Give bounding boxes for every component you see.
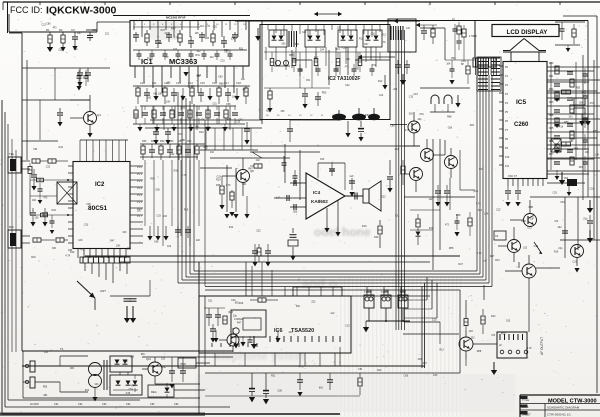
svg-text:102: 102 xyxy=(124,360,129,363)
svg-text:C66: C66 xyxy=(154,240,159,243)
svg-text:472: 472 xyxy=(53,26,58,29)
svg-text:C66: C66 xyxy=(86,203,91,206)
svg-text:C92: C92 xyxy=(78,403,83,406)
svg-text:R12: R12 xyxy=(555,66,560,69)
svg-text:C51: C51 xyxy=(129,388,134,391)
svg-text:47K: 47K xyxy=(381,41,386,44)
svg-text:22p: 22p xyxy=(583,217,588,220)
svg-text:104: 104 xyxy=(320,48,325,51)
svg-text:C93: C93 xyxy=(102,403,107,406)
svg-text:681: 681 xyxy=(196,75,201,78)
svg-text:C22: C22 xyxy=(345,84,350,87)
svg-text:10K: 10K xyxy=(166,101,171,104)
svg-text:R19: R19 xyxy=(501,332,506,335)
svg-text:C15: C15 xyxy=(474,190,479,193)
svg-text:FCC ID:: FCC ID: xyxy=(10,5,43,15)
svg-text:105: 105 xyxy=(506,319,511,322)
svg-text:R47: R47 xyxy=(248,167,253,170)
svg-text:AC120V: AC120V xyxy=(30,403,39,406)
svg-text:C66: C66 xyxy=(564,177,569,180)
svg-text:472: 472 xyxy=(554,220,559,223)
svg-text:C33: C33 xyxy=(433,374,438,377)
svg-text:R31: R31 xyxy=(495,259,500,262)
svg-text:C33: C33 xyxy=(320,158,325,161)
svg-text:103: 103 xyxy=(161,358,166,361)
svg-text:R31: R31 xyxy=(451,57,456,60)
svg-text:102: 102 xyxy=(256,159,261,162)
svg-text:C15: C15 xyxy=(345,325,350,328)
svg-text:472: 472 xyxy=(491,334,496,337)
svg-text:C80: C80 xyxy=(46,23,51,26)
svg-text:R19: R19 xyxy=(184,208,189,211)
svg-text:R12: R12 xyxy=(359,38,364,41)
svg-text:222: 222 xyxy=(393,88,398,91)
svg-text:105: 105 xyxy=(473,35,478,38)
svg-text:R12: R12 xyxy=(377,369,382,372)
svg-text:C3: C3 xyxy=(71,28,75,32)
svg-text:R45: R45 xyxy=(216,184,221,187)
svg-text:P10: P10 xyxy=(505,156,510,159)
svg-text:R47: R47 xyxy=(110,239,115,242)
svg-text:IC2 TA31002F: IC2 TA31002F xyxy=(328,76,360,82)
svg-text:P1.7: P1.7 xyxy=(137,215,143,218)
svg-text:681: 681 xyxy=(569,140,574,143)
svg-text:R27: R27 xyxy=(549,153,554,156)
svg-text:C51: C51 xyxy=(306,79,311,82)
svg-text:R47: R47 xyxy=(458,263,463,266)
svg-text:104: 104 xyxy=(288,331,293,334)
svg-text:R88: R88 xyxy=(227,118,232,121)
svg-text:R23: R23 xyxy=(549,101,554,104)
svg-text:47K: 47K xyxy=(200,119,205,122)
svg-text:472: 472 xyxy=(445,224,450,227)
svg-text:R55: R55 xyxy=(593,130,598,133)
svg-text:ANT: ANT xyxy=(100,289,106,293)
svg-text:CTW-3000-01 1/1: CTW-3000-01 1/1 xyxy=(547,413,571,417)
svg-text:22p: 22p xyxy=(164,32,169,35)
svg-text:R12: R12 xyxy=(229,226,234,229)
svg-text:104: 104 xyxy=(200,25,205,28)
svg-text:105: 105 xyxy=(130,356,135,359)
svg-text:222: 222 xyxy=(170,153,175,156)
svg-text:C51: C51 xyxy=(213,26,218,29)
svg-text:MODEL CTW-3000: MODEL CTW-3000 xyxy=(548,399,597,405)
svg-text:C15: C15 xyxy=(126,392,131,395)
svg-text:C16: C16 xyxy=(212,81,217,85)
svg-text:R12: R12 xyxy=(439,348,444,351)
svg-text:R33: R33 xyxy=(169,140,174,143)
svg-text:330: 330 xyxy=(281,43,286,46)
svg-text:R88: R88 xyxy=(529,206,534,209)
svg-text:C80: C80 xyxy=(390,125,395,128)
svg-text:102: 102 xyxy=(523,247,528,250)
svg-text:105: 105 xyxy=(35,216,40,219)
svg-text:P1.1: P1.1 xyxy=(137,173,143,176)
svg-text:472: 472 xyxy=(582,91,587,94)
svg-text:R32: R32 xyxy=(160,140,165,143)
svg-text:R12: R12 xyxy=(491,315,496,318)
svg-text:C80: C80 xyxy=(579,102,584,105)
svg-text:105: 105 xyxy=(302,31,307,34)
svg-text:C80: C80 xyxy=(278,390,283,393)
svg-text:C80: C80 xyxy=(218,75,223,78)
svg-text:R2: R2 xyxy=(59,28,63,32)
svg-text:104: 104 xyxy=(209,56,214,59)
svg-text:C15: C15 xyxy=(527,227,532,230)
svg-text:330: 330 xyxy=(147,96,152,99)
svg-text:330: 330 xyxy=(231,38,236,41)
svg-text:4.7K: 4.7K xyxy=(405,129,410,132)
svg-text:330: 330 xyxy=(296,305,301,308)
svg-text:R55: R55 xyxy=(322,92,327,95)
svg-text:105: 105 xyxy=(68,249,73,252)
svg-text:C33: C33 xyxy=(178,133,183,136)
svg-text:C51: C51 xyxy=(212,103,217,106)
svg-text:47K: 47K xyxy=(345,65,350,68)
svg-text:C51: C51 xyxy=(560,201,565,204)
svg-text:R20: R20 xyxy=(549,62,554,65)
svg-text:1uF: 1uF xyxy=(530,217,535,220)
svg-text:C51: C51 xyxy=(190,85,195,88)
svg-text:R31: R31 xyxy=(174,169,179,172)
svg-text:103: 103 xyxy=(568,116,573,119)
svg-text:R31: R31 xyxy=(239,47,244,50)
svg-text:R19: R19 xyxy=(559,125,564,128)
svg-text:472: 472 xyxy=(43,196,48,199)
svg-text:102: 102 xyxy=(196,50,201,53)
svg-text:22p: 22p xyxy=(58,49,63,52)
svg-text:330: 330 xyxy=(418,358,423,361)
svg-text:681: 681 xyxy=(141,353,146,356)
svg-text:R1: R1 xyxy=(46,28,50,32)
svg-text:104: 104 xyxy=(232,95,237,98)
svg-text:R19: R19 xyxy=(362,225,367,228)
svg-text:C51: C51 xyxy=(358,368,363,371)
svg-text:681: 681 xyxy=(195,126,200,129)
svg-text:C51: C51 xyxy=(419,113,424,116)
svg-text:R19: R19 xyxy=(216,178,221,181)
svg-text:C18: C18 xyxy=(236,81,241,85)
svg-text:330: 330 xyxy=(295,43,300,46)
svg-text:R12: R12 xyxy=(85,389,90,392)
svg-text:P1.4: P1.4 xyxy=(137,194,143,197)
svg-text:C22: C22 xyxy=(342,47,347,50)
svg-text:C15: C15 xyxy=(236,120,241,123)
svg-text:C80: C80 xyxy=(180,139,185,142)
svg-text:R55: R55 xyxy=(43,386,48,389)
svg-text:R88: R88 xyxy=(456,214,461,217)
svg-text:R24: R24 xyxy=(549,114,554,117)
svg-text:10K: 10K xyxy=(242,183,247,186)
svg-text:22p: 22p xyxy=(233,314,238,317)
svg-text:R19: R19 xyxy=(266,110,271,113)
svg-text:C66: C66 xyxy=(404,374,409,377)
svg-text:DWG: DWG xyxy=(522,405,528,409)
svg-text:1uF: 1uF xyxy=(276,197,281,200)
svg-text:681: 681 xyxy=(43,394,48,397)
svg-text:X2: X2 xyxy=(495,234,499,238)
svg-text:472: 472 xyxy=(204,146,209,149)
svg-text:C51: C51 xyxy=(127,247,132,250)
svg-text:LCD DISPLAY: LCD DISPLAY xyxy=(507,29,549,36)
svg-text:4.7K: 4.7K xyxy=(174,36,179,39)
svg-text:222: 222 xyxy=(382,195,387,198)
svg-text:C11: C11 xyxy=(152,81,157,85)
svg-text:102: 102 xyxy=(210,151,215,154)
svg-text:4.7K: 4.7K xyxy=(182,174,187,177)
svg-text:R30: R30 xyxy=(142,140,147,143)
svg-text:IC4: IC4 xyxy=(313,190,321,195)
svg-text:R25: R25 xyxy=(549,127,554,130)
svg-text:222: 222 xyxy=(105,33,110,36)
svg-text:1uF: 1uF xyxy=(349,175,354,178)
svg-text:IC2: IC2 xyxy=(95,182,105,188)
svg-text:4.7K: 4.7K xyxy=(527,347,532,350)
svg-text:R88: R88 xyxy=(219,82,224,85)
svg-text:104: 104 xyxy=(94,383,99,386)
svg-text:R31: R31 xyxy=(151,140,156,143)
svg-text:R88: R88 xyxy=(574,147,579,150)
svg-text:C260: C260 xyxy=(514,122,529,128)
svg-text:SHEET: SHEET xyxy=(522,413,531,417)
svg-text:Q1: Q1 xyxy=(97,113,101,117)
svg-text:R88: R88 xyxy=(447,116,452,119)
svg-text:681: 681 xyxy=(243,88,248,91)
svg-text:P1.5: P1.5 xyxy=(137,201,143,204)
svg-text:22p: 22p xyxy=(418,118,423,121)
svg-text:C80: C80 xyxy=(224,50,229,53)
svg-text:R31: R31 xyxy=(470,124,475,127)
svg-text:1uF: 1uF xyxy=(330,312,335,315)
svg-text:222: 222 xyxy=(196,239,201,242)
svg-text:1uF: 1uF xyxy=(483,259,488,262)
svg-text:C33: C33 xyxy=(156,214,161,217)
svg-text:C15: C15 xyxy=(413,93,418,96)
svg-text:R88: R88 xyxy=(521,220,526,223)
svg-text:4.7K: 4.7K xyxy=(477,252,482,255)
svg-text:R10: R10 xyxy=(31,256,36,259)
svg-text:4.7K: 4.7K xyxy=(226,184,231,187)
svg-text:222: 222 xyxy=(205,37,210,40)
svg-text:4.7K: 4.7K xyxy=(299,365,304,368)
svg-text:R31: R31 xyxy=(52,209,57,212)
svg-text:REG: REG xyxy=(151,390,157,394)
svg-text:MIC: MIC xyxy=(9,225,14,229)
svg-text:330: 330 xyxy=(52,247,57,250)
svg-text:R19: R19 xyxy=(479,168,484,171)
svg-text:R19: R19 xyxy=(554,251,559,254)
svg-text:472: 472 xyxy=(80,248,85,251)
svg-text:C33: C33 xyxy=(589,188,594,191)
svg-text:22p: 22p xyxy=(74,48,79,51)
svg-text:C22: C22 xyxy=(256,229,261,232)
svg-text:C33: C33 xyxy=(572,261,577,264)
svg-text:8P: 8P xyxy=(461,63,464,66)
svg-text:103: 103 xyxy=(44,351,49,354)
svg-text:103: 103 xyxy=(163,215,168,218)
svg-text:222: 222 xyxy=(558,226,563,229)
svg-text:C17: C17 xyxy=(224,81,229,85)
svg-text:C22: C22 xyxy=(46,165,51,168)
svg-text:R55: R55 xyxy=(150,177,155,180)
svg-text:105: 105 xyxy=(166,82,171,85)
svg-text:C80: C80 xyxy=(155,188,160,191)
svg-text:R12: R12 xyxy=(378,80,383,83)
svg-text:C33: C33 xyxy=(84,223,89,226)
svg-text:472: 472 xyxy=(590,102,595,105)
svg-text:105: 105 xyxy=(137,209,142,212)
svg-text:330: 330 xyxy=(579,166,584,169)
svg-text:105: 105 xyxy=(195,32,200,35)
svg-text:22p: 22p xyxy=(558,247,563,250)
svg-text:681: 681 xyxy=(478,209,483,212)
svg-text:R31: R31 xyxy=(195,54,200,57)
svg-text:SCHEMATIC DIAGRAM: SCHEMATIC DIAGRAM xyxy=(547,406,580,410)
svg-text:IC5: IC5 xyxy=(516,99,527,106)
svg-text:R55: R55 xyxy=(449,247,454,250)
svg-text:330: 330 xyxy=(181,107,186,110)
svg-text:OSC XT: OSC XT xyxy=(508,175,517,178)
svg-text:R47: R47 xyxy=(77,32,82,35)
svg-text:R21: R21 xyxy=(549,75,554,78)
svg-text:R47: R47 xyxy=(364,43,369,46)
svg-text:C94: C94 xyxy=(126,403,131,406)
svg-text:R31: R31 xyxy=(271,374,276,377)
svg-text:C91: C91 xyxy=(54,403,59,406)
svg-text:10K: 10K xyxy=(32,199,37,202)
svg-text:R55: R55 xyxy=(576,86,581,89)
svg-text:R31: R31 xyxy=(70,367,75,370)
svg-text:KA8602: KA8602 xyxy=(311,199,328,204)
svg-text:1uF: 1uF xyxy=(346,58,351,61)
svg-text:102: 102 xyxy=(379,94,384,97)
svg-text:R35: R35 xyxy=(187,140,192,143)
svg-text:102: 102 xyxy=(428,198,433,201)
svg-text:MC3363: MC3363 xyxy=(169,57,197,66)
svg-text:R12: R12 xyxy=(381,34,386,37)
svg-text:AF OUTPUT: AF OUTPUT xyxy=(540,337,544,355)
svg-text:R26: R26 xyxy=(549,140,554,143)
svg-text:C15: C15 xyxy=(432,319,437,322)
svg-text:R55: R55 xyxy=(289,54,294,57)
svg-text:10K: 10K xyxy=(78,239,83,242)
svg-text:TITLE: TITLE xyxy=(522,398,529,402)
svg-text:R88: R88 xyxy=(477,350,482,353)
svg-text:R47: R47 xyxy=(490,255,495,258)
svg-text:C95: C95 xyxy=(150,403,155,406)
svg-text:P1.3: P1.3 xyxy=(137,187,143,190)
svg-text:C66: C66 xyxy=(448,126,453,129)
svg-text:C51: C51 xyxy=(33,148,38,151)
svg-text:10K: 10K xyxy=(158,92,163,95)
svg-text:C51: C51 xyxy=(208,300,213,303)
svg-text:R10: R10 xyxy=(158,42,163,45)
svg-text:R10: R10 xyxy=(239,302,244,305)
svg-text:222: 222 xyxy=(395,148,400,151)
svg-text:222: 222 xyxy=(311,301,316,304)
svg-text:R47: R47 xyxy=(237,322,242,325)
svg-text:C15: C15 xyxy=(534,245,539,248)
svg-text:C15: C15 xyxy=(200,81,205,85)
svg-text:472: 472 xyxy=(423,362,428,365)
svg-text:C66: C66 xyxy=(226,103,231,106)
svg-text:C51: C51 xyxy=(220,59,225,62)
svg-text:330: 330 xyxy=(409,113,414,116)
svg-text:P1.2: P1.2 xyxy=(137,180,143,183)
svg-text:C13: C13 xyxy=(176,81,181,85)
svg-text:C51: C51 xyxy=(395,214,400,217)
svg-text:R55: R55 xyxy=(564,121,569,124)
svg-text:104: 104 xyxy=(147,57,152,60)
svg-text:103: 103 xyxy=(469,330,474,333)
svg-text:MC3363 RF/IF: MC3363 RF/IF xyxy=(166,16,186,20)
svg-text:C96: C96 xyxy=(174,403,179,406)
svg-text:222: 222 xyxy=(471,337,476,340)
svg-text:C33: C33 xyxy=(231,299,236,302)
svg-text:C80: C80 xyxy=(293,210,298,213)
svg-text:C10: C10 xyxy=(140,81,145,85)
svg-text:R12: R12 xyxy=(59,146,64,149)
svg-text:IQKCKW-3000: IQKCKW-3000 xyxy=(46,5,117,17)
svg-text:10K: 10K xyxy=(484,213,489,216)
svg-text:103: 103 xyxy=(585,151,590,154)
svg-text:1uF: 1uF xyxy=(162,366,167,369)
svg-text:104: 104 xyxy=(446,62,451,65)
svg-text:80C51: 80C51 xyxy=(88,205,108,212)
svg-text:7805: 7805 xyxy=(180,362,186,366)
svg-text:C51: C51 xyxy=(371,32,376,35)
svg-text:681: 681 xyxy=(319,386,324,389)
svg-text:R22: R22 xyxy=(549,88,554,91)
svg-text:102: 102 xyxy=(337,27,342,30)
svg-text:R10: R10 xyxy=(199,131,204,134)
svg-text:10K: 10K xyxy=(241,78,246,81)
svg-text:104: 104 xyxy=(167,245,172,248)
svg-text:4.7K: 4.7K xyxy=(65,254,70,257)
svg-text:1uF: 1uF xyxy=(406,27,411,30)
svg-text:T1: T1 xyxy=(60,347,64,351)
svg-text:C66: C66 xyxy=(330,169,335,172)
svg-text:R19: R19 xyxy=(374,236,379,239)
svg-text:10K: 10K xyxy=(116,245,121,248)
svg-text:10K: 10K xyxy=(595,153,600,156)
svg-text:C66: C66 xyxy=(92,29,97,32)
svg-text:C51: C51 xyxy=(553,191,558,194)
svg-text:TSA5520: TSA5520 xyxy=(291,328,314,334)
svg-text:R47: R47 xyxy=(171,27,176,30)
svg-text:103: 103 xyxy=(122,231,127,234)
svg-text:P11: P11 xyxy=(505,165,510,168)
svg-text:Q10: Q10 xyxy=(146,357,151,361)
svg-text:P1.0: P1.0 xyxy=(137,166,143,169)
svg-text:4.0MHz: 4.0MHz xyxy=(234,317,244,321)
svg-text:C22: C22 xyxy=(41,24,46,27)
svg-text:R47: R47 xyxy=(314,57,319,60)
svg-text:4.7K: 4.7K xyxy=(476,203,481,206)
svg-text:105: 105 xyxy=(280,110,285,113)
svg-text:102: 102 xyxy=(173,48,178,51)
svg-text:C22: C22 xyxy=(496,208,501,211)
